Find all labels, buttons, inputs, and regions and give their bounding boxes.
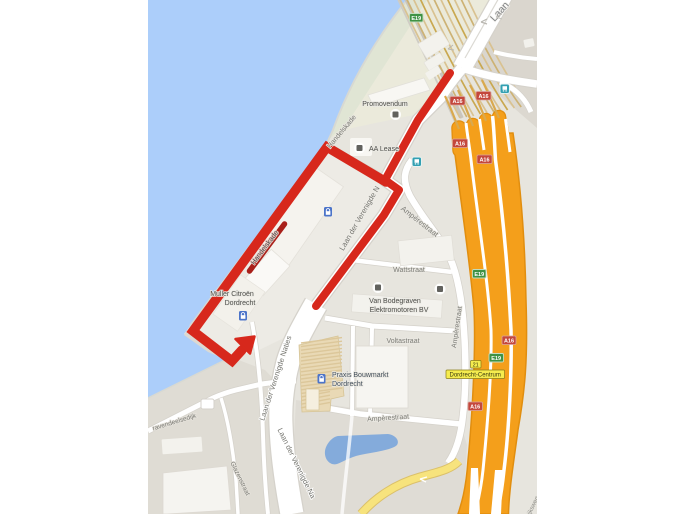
svg-text:Promovendum: Promovendum	[362, 101, 408, 108]
svg-text:A16: A16	[470, 405, 480, 411]
svg-text:A16: A16	[452, 99, 462, 105]
svg-text:Wattstraat: Wattstraat	[393, 267, 425, 274]
svg-text:Praxis Bouwmarkt: Praxis Bouwmarkt	[332, 372, 388, 379]
svg-text:Dordrecht: Dordrecht	[225, 300, 256, 307]
svg-text:E19: E19	[491, 356, 501, 362]
svg-text:Muller Citroën: Muller Citroën	[210, 291, 254, 298]
svg-text:Dordrecht: Dordrecht	[332, 381, 363, 388]
svg-text:E19: E19	[474, 272, 484, 278]
svg-text:Dordrecht-Centrum: Dordrecht-Centrum	[450, 373, 501, 379]
svg-text:A16: A16	[479, 158, 489, 164]
svg-text:Van Bodegraven: Van Bodegraven	[369, 298, 421, 305]
svg-text:E19: E19	[411, 16, 421, 22]
svg-text:A16: A16	[455, 142, 465, 148]
svg-text:Voltastraat: Voltastraat	[386, 338, 419, 345]
svg-text:AA Lease: AA Lease	[369, 146, 399, 153]
svg-text:21: 21	[473, 362, 479, 368]
svg-text:Elektromotoren BV: Elektromotoren BV	[370, 307, 429, 314]
svg-text:A16: A16	[478, 94, 488, 100]
svg-text:A16: A16	[504, 339, 514, 345]
